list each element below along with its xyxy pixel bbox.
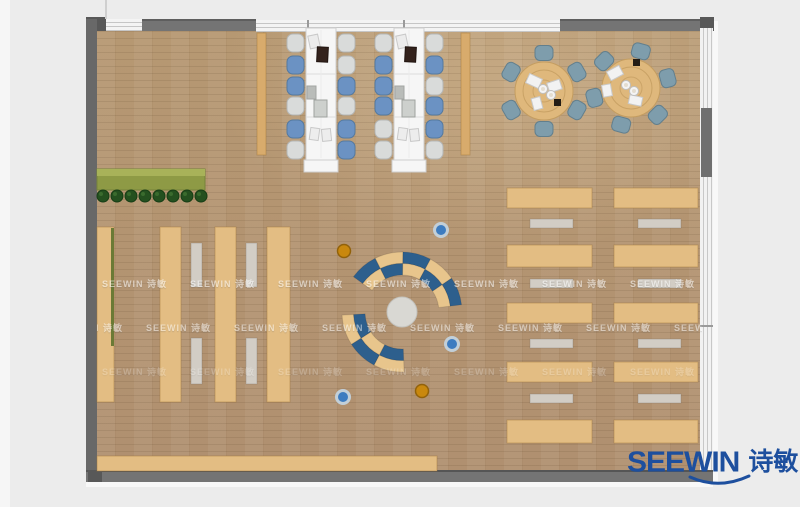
wood-floor [97, 31, 702, 470]
wall-top-right-segment [560, 19, 700, 31]
mullion-top-2 [403, 20, 405, 32]
mullion-top-1 [307, 20, 309, 32]
glass-reflection-bottom [86, 482, 713, 487]
wall-bottom [86, 470, 713, 482]
mullion-right-1 [700, 325, 713, 327]
seewin-logo: SEEWIN 诗敏 [627, 448, 798, 478]
wall-right-segment [701, 108, 712, 177]
wall-top-left-segment [142, 19, 256, 31]
curtain-wall-right [700, 28, 713, 470]
floorplan-page: SEEWIN 诗敏SEEWIN 诗敏SEEWIN 诗敏SEEWIN 诗敏SEEW… [0, 0, 800, 507]
logo-chinese-name: 诗敏 [748, 450, 798, 475]
glass-reflection-right [713, 21, 718, 482]
wall-corner-bottom-left [88, 470, 102, 482]
curtain-wall-top [256, 20, 560, 32]
wall-left [86, 19, 97, 481]
column-line-top [105, 0, 107, 19]
logo-swoosh-icon [687, 474, 757, 488]
page-margin-strip [0, 0, 10, 507]
door-glass-top-left [106, 19, 142, 31]
